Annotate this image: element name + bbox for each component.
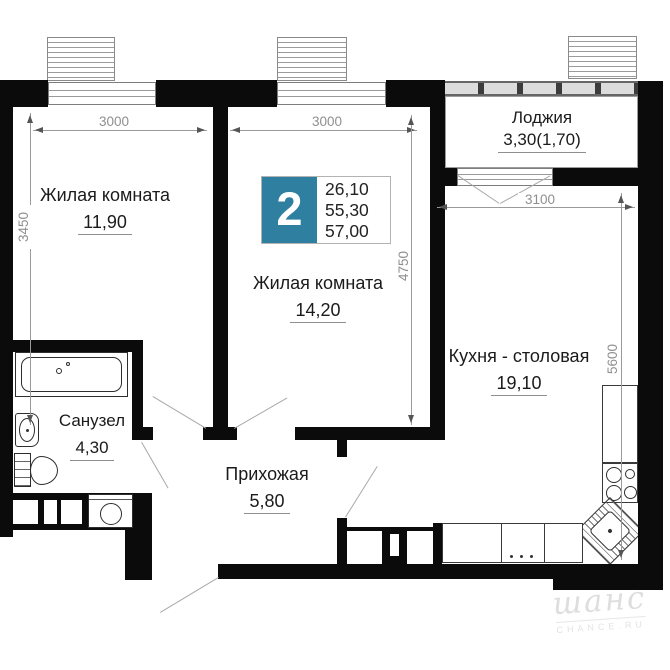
burner [606,467,622,483]
bathtub-drain [56,368,62,374]
wall-entry-block [125,530,152,580]
kitchen-counter-right [602,385,638,463]
dim-line-room2-width [230,130,417,131]
wall-loggia-sill-left [430,168,457,186]
duct-core [390,534,399,556]
sink-drain [26,429,29,432]
wall-loggia-sill-right [553,168,638,186]
window-exterior-room1 [47,37,115,81]
counter-divider [544,524,545,562]
dim-label-room2-width: 3000 [297,115,357,129]
kitchen-counter-bottom [442,523,583,563]
washer-panel-line [89,499,132,500]
dim-line-room1-width [33,130,207,131]
floor-plan: 3000 3000 3450 4750 3100 5600 Жилая комн… [0,0,670,670]
wall-hall-kitchen [295,427,445,440]
wall-bottom [218,564,663,579]
dim-line-kitchen-width [437,207,635,208]
loggia-railing [445,81,638,96]
bathroom-label: Санузел 4,30 [42,411,142,461]
washing-machine [88,494,133,528]
wall-right [638,81,663,590]
handle-dots [530,555,533,558]
window-exterior-loggia [568,36,637,79]
wall-room-divider-foot [203,427,237,440]
loggia-label: Лоджия 3,30(1,70) [467,108,617,153]
room2-name: Жилая комната [243,273,393,293]
kitchen-area: 19,10 [491,373,546,396]
toilet-tank [14,453,31,487]
washer-door [100,503,122,525]
area-living: 26,10 [325,179,390,200]
dim-label-room1-width: 3000 [84,115,144,129]
door-swing-bathroom [141,442,168,488]
apartment-badge: 2 26,10 55,30 57,00 [261,176,391,244]
vent-shaft [44,500,57,524]
handle-dots [510,555,513,558]
dim-line-room2-height [411,115,412,425]
window-room2 [277,82,386,105]
burner [625,469,635,479]
counter-divider [501,524,502,562]
hallway-label: Прихожая 5,80 [192,464,342,514]
loggia-name: Лоджия [467,108,617,128]
door-swing-room1 [152,396,206,429]
bathroom-area: 4,30 [70,438,113,461]
door-swing-entrance [160,577,219,613]
door-swing-room2 [234,398,287,429]
room1-name: Жилая комната [30,185,180,205]
burner [624,486,637,499]
dim-label-room2-height: 4750 [397,243,411,289]
dim-label-room1-height: 3450 [17,205,31,249]
room1-label: Жилая комната 11,90 [30,185,180,235]
watermark-logo: шанс [523,580,670,622]
window-exterior-room2 [277,37,347,81]
watermark: шанс CHANCE.RU [523,580,670,640]
bathtub-tap [66,362,70,366]
room2-area: 14,20 [290,300,345,323]
area-secondary: 55,30 [325,200,390,221]
watermark-site: CHANCE.RU [556,616,646,635]
wall-bath-top [0,340,143,352]
kitchen-label: Кухня - столовая 19,10 [434,346,604,396]
hallway-name: Прихожая [192,464,342,484]
wall-left-stub [0,530,13,537]
wall-closet-bar [433,523,442,564]
area-total: 57,00 [325,221,390,242]
handle-dots [520,555,523,558]
dim-label-kitchen-height: 5600 [606,336,620,382]
vent-shaft [13,500,38,524]
wall-top-b [156,80,277,107]
wall-left [0,80,13,537]
window-room1 [48,82,156,105]
kitchen-corner-sink [576,497,644,565]
door-swing-kitchen [345,466,378,517]
vent-shaft [61,500,82,524]
dim-line-kitchen-height [621,193,622,560]
bathtub [15,352,128,397]
bathtub-inner [21,357,122,392]
hallway-area: 5,80 [244,491,289,514]
badge-areas: 26,10 55,30 57,00 [317,177,390,243]
bathroom-name: Санузел [42,411,142,431]
kitchen-name: Кухня - столовая [434,346,604,366]
wall-room-divider [213,107,228,427]
wall-kitchen-door-stub [337,440,347,457]
room2-label: Жилая комната 14,20 [243,273,393,323]
dim-label-kitchen-width: 3100 [518,193,562,207]
wall-vestibule [337,518,347,564]
loggia-area: 3,30(1,70) [498,130,586,153]
room1-area: 11,90 [78,212,132,235]
rooms-count-badge: 2 [262,177,317,243]
stove [602,463,638,503]
dim-line-room1-height [30,113,31,425]
